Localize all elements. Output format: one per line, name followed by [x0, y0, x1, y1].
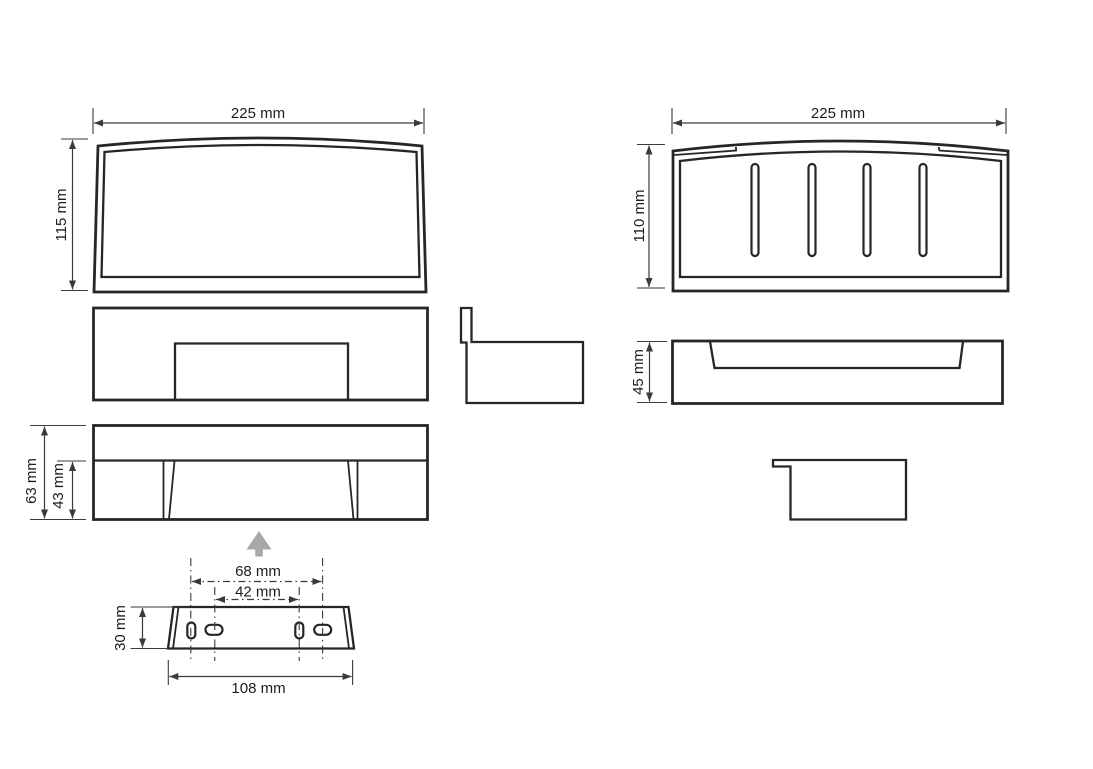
- bracket-width-label: 108 mm: [231, 680, 285, 697]
- top-width-label: 225 mm: [811, 105, 865, 122]
- top-view-outer-outline: [673, 141, 1008, 291]
- drain-slot: [920, 164, 927, 256]
- top-width-dimension: 225 mm: [672, 105, 1006, 134]
- top-view: [673, 141, 1008, 291]
- side-recess-view: [673, 341, 1003, 404]
- underside-elevation-view: [94, 426, 428, 520]
- technical-drawing: 225 mm 115 mm 225 mm 110 mm: [0, 0, 1093, 769]
- front-width-dimension: 225 mm: [93, 105, 424, 134]
- drain-slot: [809, 164, 816, 256]
- underside-total-height-label: 63 mm: [23, 458, 40, 504]
- bracket-inner-hole-spacing-dimension: 42 mm: [216, 584, 298, 601]
- front-view: [94, 138, 426, 292]
- top-depth-dimension: 110 mm: [631, 145, 665, 289]
- side-profile-outline: [461, 308, 583, 403]
- drain-slot: [752, 164, 759, 256]
- front-view-outer-outline: [94, 138, 426, 292]
- front-view-inner-outline: [102, 145, 420, 277]
- bracket-recess-outline: [175, 344, 348, 401]
- front-width-label: 225 mm: [231, 105, 285, 122]
- bracket-outer-hole-spacing-dimension: 68 mm: [192, 563, 322, 582]
- drawing-canvas: 225 mm 115 mm 225 mm 110 mm: [0, 0, 1093, 769]
- bracket-inner-hole-spacing-label: 42 mm: [235, 584, 281, 601]
- bracket-slot-horizontal: [206, 625, 223, 635]
- side-profile-view: [461, 308, 583, 403]
- bracket-height-label: 30 mm: [112, 605, 129, 651]
- top-view-inner-outline: [680, 152, 1001, 278]
- underside-recess-height-dimension: 43 mm: [50, 461, 86, 519]
- mount-direction-arrow-icon: [247, 531, 272, 557]
- top-depth-label: 110 mm: [631, 189, 648, 242]
- underside-elevation-outline: [94, 426, 428, 520]
- drain-slot: [864, 164, 871, 256]
- side-height-dimension: 45 mm: [630, 342, 667, 403]
- side-height-label: 45 mm: [630, 349, 647, 395]
- rear-side-profile-outline: [773, 460, 906, 520]
- underside-plan-outline: [94, 308, 428, 400]
- bracket-outer-hole-spacing-label: 68 mm: [235, 563, 281, 580]
- front-height-label: 115 mm: [53, 188, 70, 241]
- front-height-dimension: 115 mm: [53, 139, 88, 291]
- recess-draft-left: [169, 461, 175, 519]
- bracket-width-dimension: 108 mm: [168, 660, 352, 697]
- side-recess-outline: [673, 341, 1003, 404]
- side-recess-basin: [710, 342, 963, 369]
- underside-plan-view: [94, 308, 428, 400]
- recess-draft-right: [348, 461, 354, 519]
- rear-side-profile-view: [773, 460, 906, 520]
- underside-recess-height-label: 43 mm: [50, 463, 67, 509]
